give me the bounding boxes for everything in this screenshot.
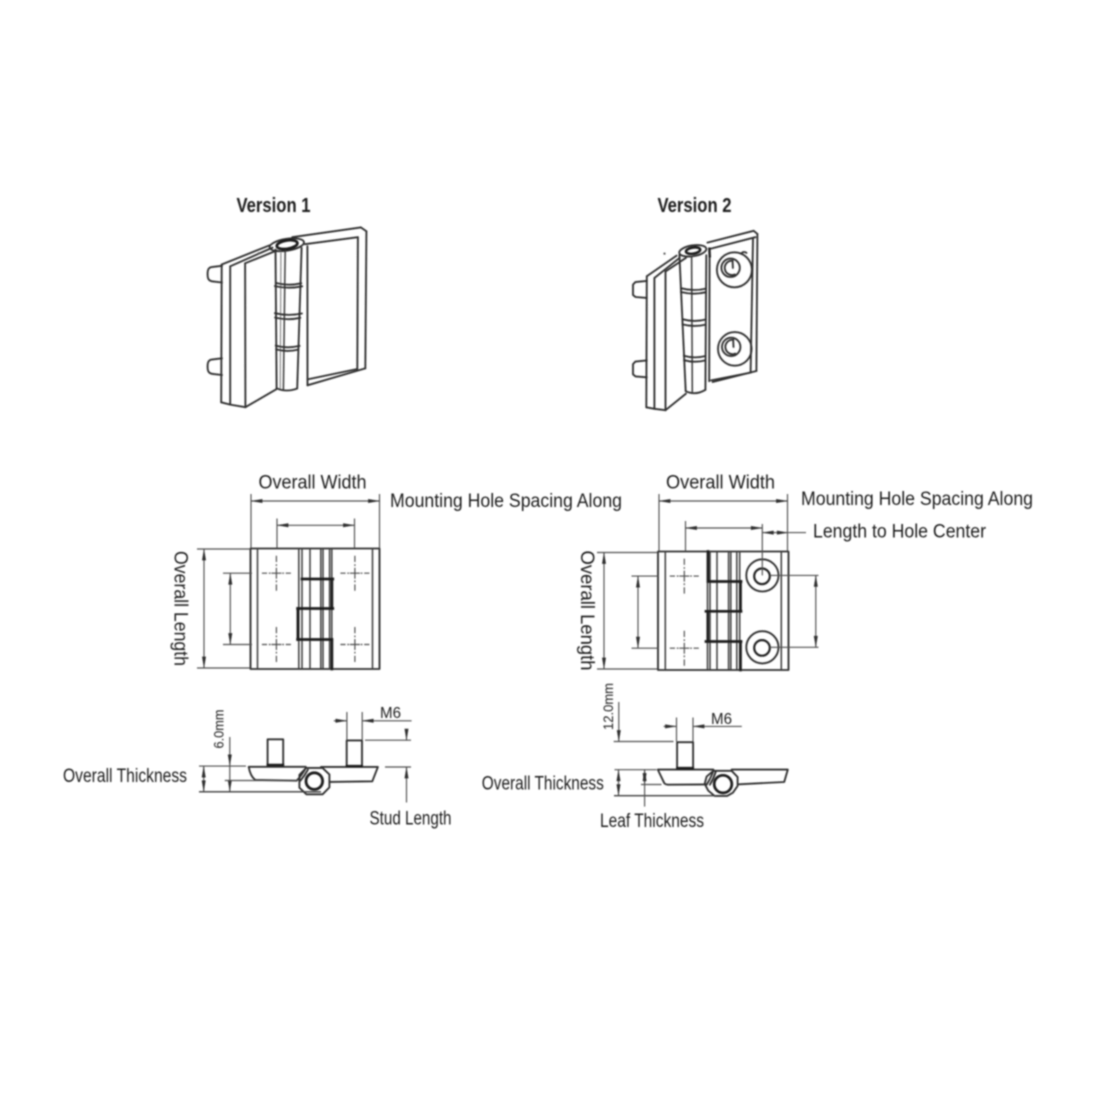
svg-text:Overall Width: Overall Width: [666, 473, 775, 494]
svg-text:Overall Thickness: Overall Thickness: [63, 766, 187, 787]
svg-text:Stud Length: Stud Length: [370, 809, 452, 830]
svg-text:6.0mm: 6.0mm: [211, 710, 227, 749]
svg-text:Length to Hole Center: Length to Hole Center: [813, 522, 987, 543]
svg-text:M6: M6: [380, 705, 401, 722]
svg-text:Version 1: Version 1: [237, 195, 311, 217]
svg-text:Overall Length: Overall Length: [170, 551, 191, 666]
svg-text:12.0mm: 12.0mm: [600, 683, 616, 730]
svg-text:Mounting Hole Spacing Along: Mounting Hole Spacing Along: [801, 489, 1033, 510]
svg-text:M6: M6: [711, 711, 732, 728]
svg-text:Mounting Hole Spacing Along: Mounting Hole Spacing Along: [390, 491, 622, 512]
svg-text:Version 2: Version 2: [658, 195, 732, 217]
svg-text:Overall Length: Overall Length: [576, 551, 597, 671]
svg-text:Overall Thickness: Overall Thickness: [482, 774, 604, 795]
svg-text:Leaf Thickness: Leaf Thickness: [600, 811, 704, 832]
svg-text:Overall Width: Overall Width: [259, 473, 367, 494]
